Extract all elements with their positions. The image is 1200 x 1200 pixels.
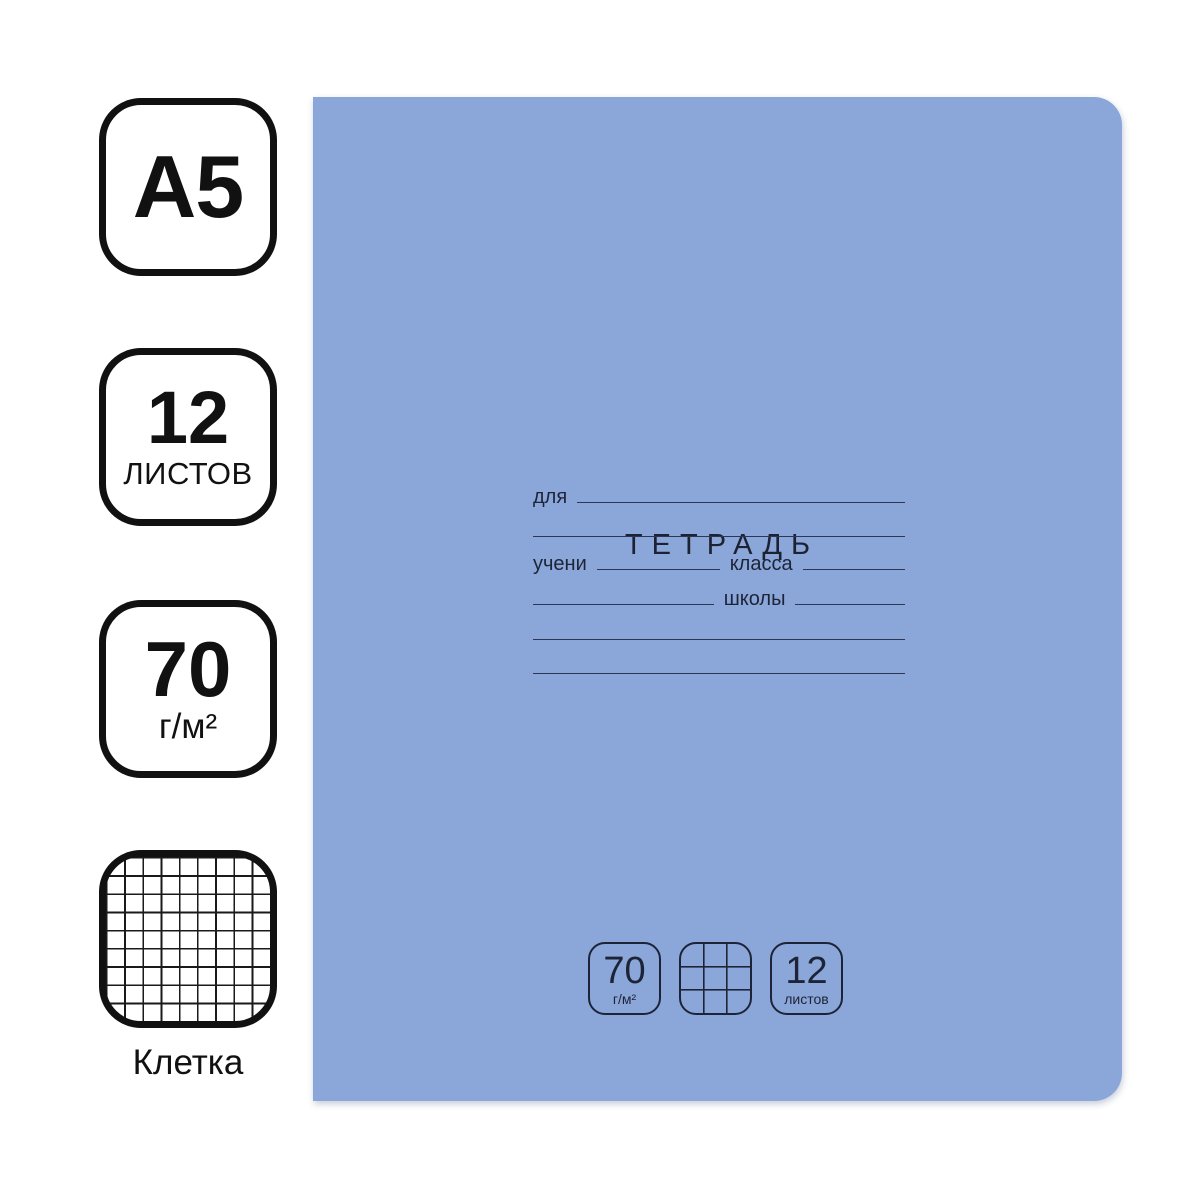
blank-line (533, 536, 905, 537)
density-spec-value: 70 (603, 952, 645, 990)
grid-icon (679, 942, 752, 1015)
form-row-school: школы (533, 579, 905, 605)
density-badge: 70 г/м² (99, 600, 277, 778)
blank-line (533, 604, 714, 605)
class-label: класса (730, 554, 793, 574)
sheets-spec-badge: 12 листов (770, 942, 843, 1015)
for-label: для (533, 487, 567, 507)
sheets-value: 12 (147, 383, 229, 453)
density-unit: г/м² (159, 708, 217, 747)
blank-line (577, 502, 905, 503)
ruling-label: Клетка (79, 1044, 297, 1083)
blank-line (597, 569, 720, 570)
form-row-blank (533, 511, 905, 537)
form-row-blank (533, 648, 905, 674)
sheets-unit: ЛИСТОВ (123, 457, 252, 491)
density-spec-unit: г/м² (613, 992, 636, 1006)
density-value: 70 (145, 632, 232, 706)
notebook-cover: ТЕТРАДЬ для учени класса школы 70 (313, 97, 1122, 1101)
sheets-badge: 12 ЛИСТОВ (99, 348, 277, 526)
form-row-blank (533, 614, 905, 640)
blank-line (533, 639, 905, 640)
form-row-student-class: учени класса (533, 544, 905, 570)
school-label: школы (724, 589, 786, 609)
form-row-for: для (533, 477, 905, 503)
sheets-spec-unit: листов (784, 992, 828, 1006)
sheets-spec-value: 12 (785, 952, 827, 990)
student-label: учени (533, 554, 587, 574)
product-card: А5 12 ЛИСТОВ 70 г/м² Клетка ТЕТРАДЬ для … (0, 0, 1200, 1200)
format-label: А5 (133, 143, 244, 231)
grid-icon (99, 850, 277, 1028)
density-spec-badge: 70 г/м² (588, 942, 661, 1015)
blank-line (803, 569, 905, 570)
cover-spec-badges: 70 г/м² 12 листов (588, 942, 843, 1015)
blank-line (795, 604, 905, 605)
blank-line (533, 673, 905, 674)
format-badge: А5 (99, 98, 277, 276)
